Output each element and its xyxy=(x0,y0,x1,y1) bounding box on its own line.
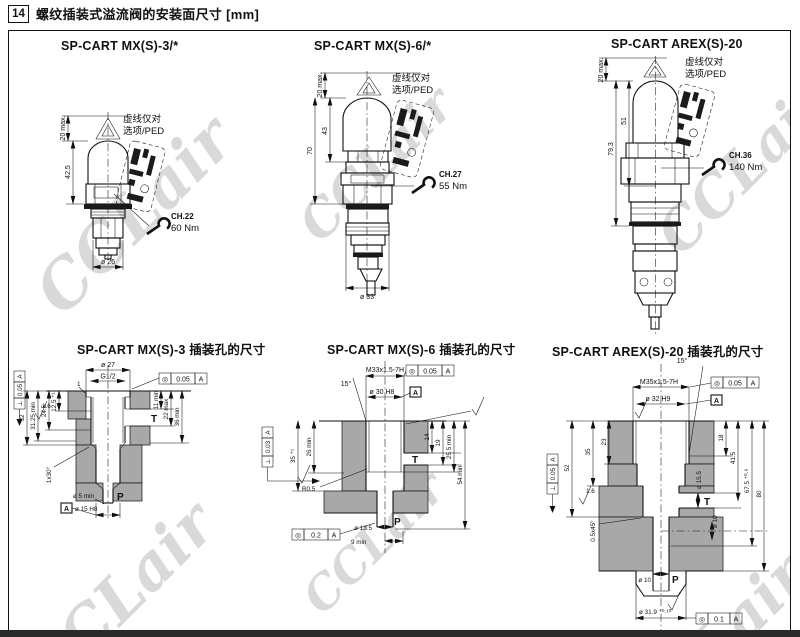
dim-label: ø 32 H9 xyxy=(646,396,671,403)
cavity-section xyxy=(599,421,769,596)
gdt-value: 0.05 xyxy=(550,467,557,480)
port-t-label: T xyxy=(151,414,157,425)
dim-label: 1 xyxy=(77,381,81,388)
gdt-concentricity-frame: ◎ 0.05 A xyxy=(404,365,454,376)
port-p-label: P xyxy=(672,575,679,586)
roughness-symbol xyxy=(298,465,310,483)
gdt-datum: A xyxy=(199,377,204,384)
arex-cavity-drawing: 15° M35x1.5-7H ø 32 H9 23 35 52 0.5x45° … xyxy=(541,346,791,631)
ped-note-line1: 虚线仅对 xyxy=(685,56,724,68)
page-bottom-bar xyxy=(0,630,800,637)
dim-label: 70 xyxy=(307,147,314,155)
dim-label: ø 10 xyxy=(712,515,719,528)
dim-label: 0.5x45° xyxy=(589,520,597,542)
gdt-datum: A xyxy=(550,457,557,462)
wrench-icon xyxy=(702,159,725,175)
dim-label: 20 max. xyxy=(60,115,67,140)
dim-label: ø 31.9 ⁺⁰·¹⁰ xyxy=(639,609,672,616)
mx6-cavity-drawing: M33x1.5-7H 15° ø 30 H8 35 ⁺¹ 26 min R0.5… xyxy=(254,353,539,578)
ped-nameplate xyxy=(379,99,434,178)
mx6-valve-drawing: 20 max. 43 70 ø 33 虚线仅对 选项/PED CH.27 55 … xyxy=(296,67,541,322)
ped-note-line2: 选项/PED xyxy=(123,125,164,137)
dim-label: 15° xyxy=(341,380,352,388)
port-p-label: P xyxy=(394,517,401,528)
dim-label: G1/2 xyxy=(100,374,115,381)
dim-label: 41.5 xyxy=(730,451,737,464)
gdt-datum: A xyxy=(446,369,451,376)
gdt-datum: A xyxy=(734,617,739,624)
gdt-datum: A xyxy=(265,430,272,435)
hex-size-label: CH.36 xyxy=(729,151,752,160)
dim-label: R0.5 xyxy=(302,486,316,493)
port-t-label: T xyxy=(412,455,418,466)
svg-text:A: A xyxy=(413,390,418,397)
roughness-symbol xyxy=(472,397,484,415)
svg-text:A: A xyxy=(64,506,69,513)
hex-size-label: CH.27 xyxy=(439,170,462,179)
dim-label: 52 xyxy=(564,464,571,472)
dim-label: ø 27 xyxy=(101,362,115,369)
title-mx3-valve: SP-CART MX(S)-3/* xyxy=(61,39,178,53)
svg-text:A: A xyxy=(714,398,719,405)
dim-label: 12.5 ⁺¹ xyxy=(51,392,58,411)
torque-label: 60 Nm xyxy=(171,223,199,234)
dim-label: ø 26 xyxy=(101,259,115,266)
dim-label: ø 5 min xyxy=(73,493,94,500)
mx3-valve-drawing: 20 max. 42.5 ø 26 虚线仅对 选项/PED CH.22 60 N… xyxy=(31,106,281,291)
port-t-label: T xyxy=(704,497,710,508)
dim-label: 51 xyxy=(621,117,628,125)
dim-label: ø 33 xyxy=(360,294,374,301)
gdt-value: 0.05 xyxy=(728,381,742,388)
mx6-valve-body xyxy=(341,98,394,295)
arex-valve-drawing: 20 max. 51 79.3 虚线仅对 选项/PED CH.36 140 Nm xyxy=(561,51,791,341)
torque-label: 55 Nm xyxy=(439,181,467,192)
dim-label: ø 10 xyxy=(638,577,651,584)
gdt-concentricity-frame: ◎ 0.05 A xyxy=(132,373,207,389)
dim-label: 14 xyxy=(424,433,431,441)
datum-a-box: A xyxy=(402,387,421,397)
gdt-symbol: ◎ xyxy=(295,533,301,540)
dim-label: 19 xyxy=(435,439,442,447)
title-mx6-valve: SP-CART MX(S)-6/* xyxy=(314,39,431,53)
dim-label: 80 xyxy=(756,490,763,498)
gdt-symbol: ⊥ xyxy=(550,486,557,492)
title-arex-valve: SP-CART AREX(S)-20 xyxy=(611,37,743,51)
dim-label: 20 max. xyxy=(598,57,605,82)
dim-label: 35 xyxy=(585,448,592,456)
gdt-value: 0.05 xyxy=(423,369,437,376)
dim-label: 36 min xyxy=(174,407,181,426)
gdt-value: 0.03 xyxy=(265,440,272,453)
gdt-symbol: ⊥ xyxy=(17,401,24,407)
roughness-symbol: 1.6 xyxy=(579,486,595,504)
dim-label: 26 min xyxy=(306,437,313,456)
ped-note-line1: 虚线仅对 xyxy=(392,72,431,84)
dim-label: ø 15.5 xyxy=(696,471,703,489)
dim-label: 18 xyxy=(718,434,725,442)
gdt-value: 0.2 xyxy=(311,533,321,540)
roughness-value: 1.6 xyxy=(42,403,51,410)
dim-label: 35 ⁺¹ xyxy=(290,449,297,463)
drawing-frame: CCLair CCLair CCLair CCLair CCLair CCLai… xyxy=(8,30,791,631)
port-p-label: P xyxy=(117,492,124,503)
ped-warning-icon xyxy=(644,60,666,77)
ped-note-line2: 选项/PED xyxy=(392,84,433,96)
wrench-icon xyxy=(412,177,435,193)
ped-nameplate xyxy=(663,83,715,158)
dim-label: 67.5 ⁺⁰·⁸ xyxy=(744,468,751,493)
gdt-perpendicularity-frame: A 0.05 ⊥ xyxy=(547,454,558,513)
dim-label: 31.25 min xyxy=(30,402,37,430)
gdt-symbol: ⊥ xyxy=(265,459,272,465)
dim-label: 23 xyxy=(601,438,608,446)
wrench-icon xyxy=(147,218,170,234)
roughness-symbol xyxy=(668,592,680,610)
gdt-symbol: ◎ xyxy=(714,381,720,388)
mx6-cavity-dims: M33x1.5-7H 15° ø 30 H8 35 ⁺¹ 26 min R0.5… xyxy=(290,367,470,546)
dim-label: 79.3 xyxy=(608,142,615,156)
roughness-value: 1.6 xyxy=(586,488,595,495)
mx6-dimensions: 20 max. 43 70 ø 33 xyxy=(307,72,421,301)
dim-label: 1x30° xyxy=(45,466,53,483)
gdt-value: 0.05 xyxy=(176,377,190,384)
gdt-datum: A xyxy=(332,533,337,540)
gdt-concentricity-frame-2: ◎ 0.1 A xyxy=(686,613,742,624)
gdt-symbol: ◎ xyxy=(162,377,168,384)
dim-label: 43 xyxy=(322,127,329,135)
ped-note-line1: 虚线仅对 xyxy=(123,113,162,125)
gdt-value: 0.05 xyxy=(17,383,24,396)
dim-label: 11 min xyxy=(153,390,160,409)
mx3-cavity-drawing: ø 27 G1/2 11 min 22 max 36 min 12.5 ⁺¹ 2… xyxy=(11,353,261,565)
dim-label: M35x1.5-7H xyxy=(640,379,678,386)
dim-label: 42.5 xyxy=(65,165,72,179)
torque-label: 140 Nm xyxy=(729,162,762,173)
arex-valve-body xyxy=(621,81,689,329)
mx3-cavity-dims: ø 27 G1/2 11 min 22 max 36 min 12.5 ⁺¹ 2… xyxy=(19,362,189,518)
leader-line xyxy=(406,411,471,424)
ped-warning-icon xyxy=(357,77,381,95)
dim-label: ø 30 H8 xyxy=(370,389,395,396)
ped-note-line2: 选项/PED xyxy=(685,68,726,80)
page-title: 螺纹插装式溢流阀的安装面尺寸 [mm] xyxy=(36,4,259,23)
gdt-datum: A xyxy=(17,374,24,379)
datum-a-box: A xyxy=(686,395,722,405)
page-header: 14 螺纹插装式溢流阀的安装面尺寸 [mm] xyxy=(8,4,259,23)
gdt-symbol: ◎ xyxy=(409,369,415,376)
dim-label: 22 max xyxy=(163,398,170,420)
dim-label: 20 max. xyxy=(317,72,324,97)
dim-label: M33x1.5-7H xyxy=(366,367,404,374)
gdt-datum: A xyxy=(751,381,756,388)
dim-label: 9 min xyxy=(351,539,367,546)
section-number: 14 xyxy=(8,5,29,23)
hex-size-label: CH.22 xyxy=(171,212,194,221)
gdt-value: 0.1 xyxy=(714,617,724,624)
gdt-symbol: ◎ xyxy=(699,617,705,624)
dim-label: 25.5 min xyxy=(446,434,453,459)
dim-label: 15° xyxy=(677,357,688,365)
dim-label: 54 min xyxy=(457,465,464,484)
